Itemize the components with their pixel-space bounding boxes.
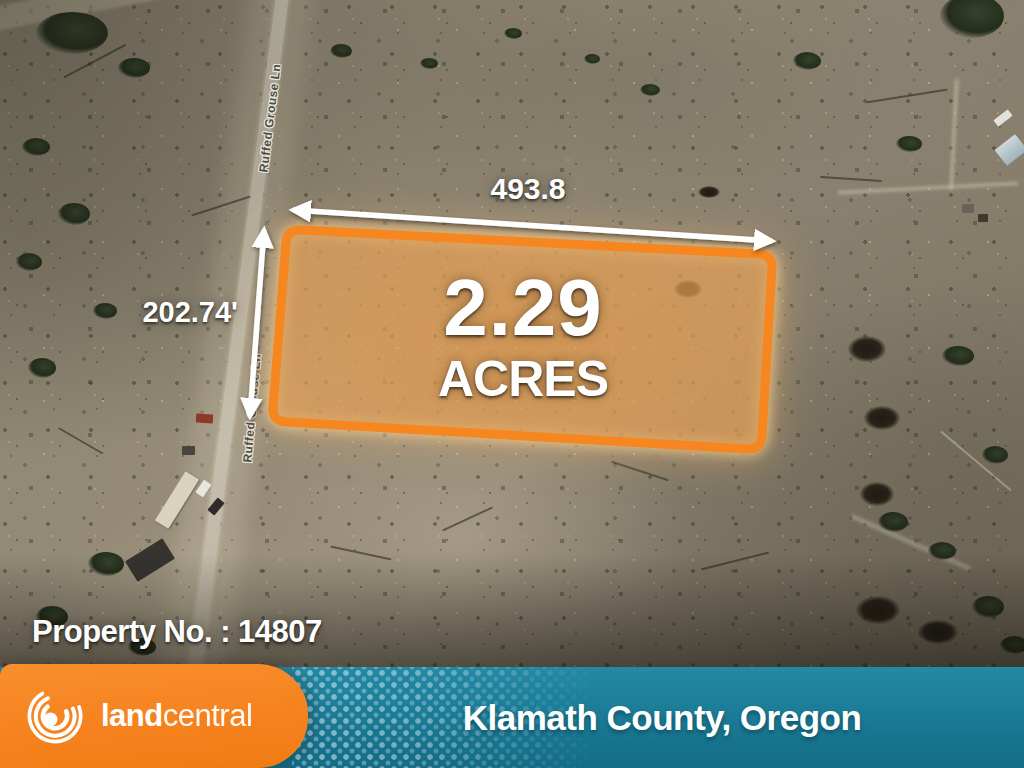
tree-cluster (504, 28, 522, 39)
acreage-callout: 2.29 ACRES (343, 268, 703, 404)
brand-name: landcentral (101, 698, 252, 734)
acreage-value: 2.29 (343, 268, 703, 348)
tree-cluster (420, 58, 438, 69)
building (978, 214, 988, 222)
brand-panel: landcentral (0, 664, 308, 768)
tree-cluster (1000, 636, 1024, 654)
burned-patch (856, 596, 900, 624)
tree-cluster (896, 136, 922, 152)
landcentral-swirl-icon (24, 685, 86, 747)
vehicle (196, 414, 213, 424)
tree-cluster (22, 138, 50, 156)
building (962, 204, 974, 213)
brand-name-light: central (163, 698, 253, 733)
burned-patch (864, 406, 900, 430)
tree-cluster (36, 12, 108, 54)
tree-cluster (330, 44, 352, 58)
burned-patch (698, 186, 720, 198)
width-dimension-label: 493.8 (408, 172, 648, 206)
tree-cluster (118, 58, 150, 78)
property-flyer: Ruffed Grouse Ln Ruffed Grouse Ln 493.8 … (0, 0, 1024, 768)
acreage-unit: ACRES (343, 354, 703, 404)
burned-patch (918, 620, 958, 644)
tree-cluster (928, 542, 956, 560)
tree-cluster (28, 358, 56, 378)
tree-cluster (972, 596, 1004, 618)
tree-cluster (982, 446, 1008, 464)
brand-name-bold: land (101, 698, 163, 733)
tree-cluster (16, 253, 42, 271)
footer-bar: Klamath County, Oregon landcentral (0, 664, 1024, 768)
tree-cluster (942, 346, 974, 366)
satellite-map: Ruffed Grouse Ln Ruffed Grouse Ln 493.8 … (0, 0, 1024, 768)
burned-patch (860, 482, 894, 506)
tree-cluster (88, 552, 124, 576)
tree-cluster (793, 52, 821, 70)
burned-patch (848, 336, 886, 362)
property-number: Property No. : 14807 (32, 614, 322, 650)
tree-cluster (58, 203, 90, 225)
tree-cluster (640, 84, 660, 96)
location-label: Klamath County, Oregon (300, 667, 1024, 768)
depth-dimension-label: 202.74' (96, 296, 238, 329)
building (182, 446, 195, 455)
tree-cluster (878, 512, 908, 532)
tree-cluster (584, 54, 600, 64)
